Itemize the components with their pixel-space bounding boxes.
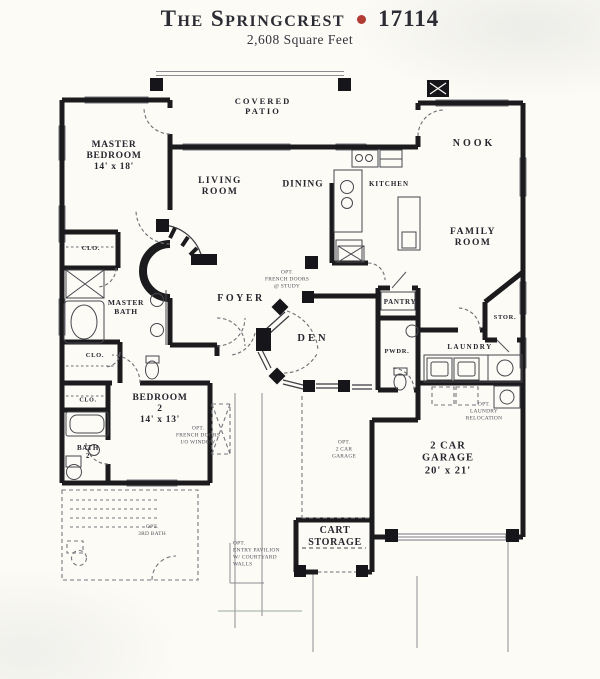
- option-label-second-garage: OPT. 2 CAR GARAGE: [332, 439, 356, 460]
- room-label-closet-bedroom2: CLO.: [79, 397, 96, 404]
- room-label-family-room: FAMILY ROOM: [450, 227, 496, 249]
- room-label-closet-master-2: CLO.: [86, 352, 105, 360]
- room-label-bedroom-2: BEDROOM 2 14' x 13': [132, 393, 187, 427]
- option-label-entry-pavilion: OPT. ENTRY PAVILION W/ COURTYARD WALLS: [233, 541, 280, 570]
- room-label-cart-storage: CART STORAGE: [308, 525, 362, 549]
- room-label-pantry: PANTRY: [384, 298, 417, 306]
- room-label-garage: 2 CAR GARAGE 20' x 21': [422, 440, 474, 477]
- room-label-dining: DINING: [282, 179, 323, 190]
- room-label-master-bath: MASTER BATH: [108, 299, 144, 317]
- room-label-kitchen: KITCHEN: [369, 180, 409, 188]
- option-label-french-doors-window: OPT. FRENCH DOORS I/O WINDOW: [176, 425, 220, 446]
- room-label-den: DEN: [297, 333, 328, 345]
- room-label-closet-master-1: CLO.: [82, 245, 101, 253]
- site-lines: [156, 72, 508, 653]
- posts: [150, 78, 519, 577]
- room-label-covered-patio: COVERED PATIO: [235, 96, 292, 116]
- room-label-laundry: LAUNDRY: [447, 343, 492, 351]
- room-label-foyer: FOYER: [217, 293, 265, 305]
- room-label-storage: STOR.: [494, 314, 517, 322]
- room-label-master-bedroom: MASTER BEDROOM 14' x 18': [86, 140, 141, 174]
- patio-grill-icon: [427, 80, 449, 97]
- room-label-powder: PWDR.: [385, 348, 410, 356]
- room-label-living-room: LIVING ROOM: [198, 176, 242, 198]
- option-label-third-bath: OPT. 3RD BATH: [138, 524, 166, 538]
- doors: [86, 108, 480, 572]
- floorplan-page: The Springcrest 17114 2,608 Square Feet: [0, 0, 600, 679]
- option-label-french-doors-study: OPT. FRENCH DOORS @ STUDY: [265, 269, 309, 290]
- option-label-laundry-relocation: OPT. LAUNDRY RELOCATION: [466, 401, 503, 422]
- room-label-nook: NOOK: [453, 138, 496, 150]
- room-label-bath-2: BATH 2: [77, 444, 99, 461]
